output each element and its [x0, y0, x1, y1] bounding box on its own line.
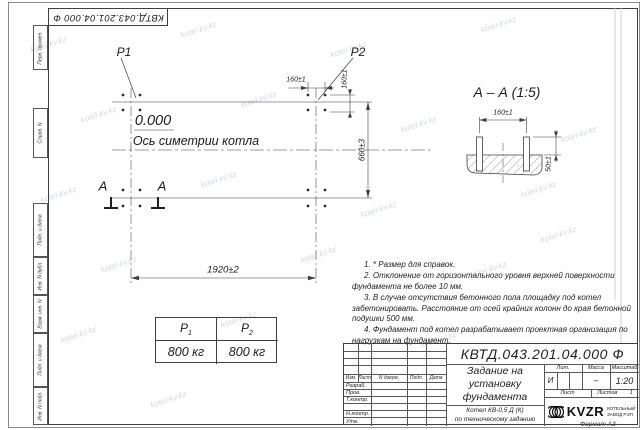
title-block: Изм. Лист N докум. Подп. Дата Разраб. Пр…: [343, 343, 638, 425]
dim-1920: 1920±2: [207, 265, 239, 276]
document-title-line: фундамента: [463, 391, 528, 404]
row-prov: Пров.: [344, 389, 371, 396]
scale-value: 1:20: [610, 372, 639, 389]
scale-label: Масштаб: [610, 364, 639, 372]
col-podp: Подп.: [407, 374, 426, 382]
load-table-header-p1: P1: [180, 321, 192, 337]
format-label: Формат А3: [580, 421, 616, 428]
document-title: Задание на установку фундамента: [446, 364, 544, 405]
title-block-designation: КВТД.043.201.04.000 Ф: [446, 344, 639, 364]
load-table-header-p2: P2: [241, 321, 253, 337]
sheet-label: Лист: [544, 389, 591, 397]
section-view-title: А – А (1:5): [474, 84, 541, 100]
company-logo-text: KVZR: [567, 404, 604, 419]
row-razrab: Разраб.: [344, 382, 371, 389]
load-point-p1-label: P1: [117, 45, 132, 59]
plan-anchor-bolts: [122, 94, 327, 208]
dim-160-horizontal: 160±1: [286, 77, 305, 84]
row-tkontr: Т.контр.: [344, 396, 371, 403]
company-name-line: ЗАВОД РЭП: [607, 412, 635, 417]
col-data: Дата: [426, 374, 446, 382]
dim-660: 660±3: [358, 139, 367, 161]
document-title-line: установку: [469, 378, 521, 391]
company-name: КОТЕЛЬНЫЙ ЗАВОД РЭП: [607, 406, 635, 417]
product-name-line: по техническому заданию: [455, 416, 535, 424]
mass-label: Масса: [582, 364, 610, 372]
technical-notes: 1. * Размер для справок. 2. Отклонение о…: [352, 260, 634, 347]
section-mark-a-right: А: [158, 179, 167, 194]
col-izm: Изм.: [344, 374, 358, 382]
symmetry-axis-label: Ось симетрии котла: [133, 134, 259, 148]
section-dim-160: 160±1: [493, 110, 512, 117]
dim-160-vertical: 160±1: [342, 69, 349, 88]
note-2: 2. Отклонение от горизонтального уровня …: [352, 271, 634, 292]
section-cut-marks: [104, 197, 165, 208]
note-1: 1. * Размер для справок.: [352, 260, 634, 270]
p-sub: 1: [188, 330, 192, 337]
section-mark-a-left: А: [99, 179, 108, 194]
row-nkontr: Н.контр.: [344, 410, 371, 417]
lit-label: Лит.: [544, 364, 582, 372]
lit-value: И: [544, 372, 557, 389]
sheets-label: Листов: [597, 390, 617, 396]
plan-view-lines: [112, 58, 432, 286]
load-table-value-p2: 800 кг: [229, 345, 265, 359]
load-point-p2-label: P2: [351, 45, 366, 59]
col-ndocum: N докум.: [371, 374, 407, 382]
sheets-cell: Листов 1: [591, 389, 639, 397]
product-name: Котел КВ-0,5 Д (К) по техническому задан…: [446, 405, 544, 426]
col-list: Лист: [358, 374, 371, 382]
company-logo: KVZR КОТЕЛЬНЫЙ ЗАВОД РЭП: [548, 404, 636, 420]
row-utv: Утв.: [344, 417, 371, 426]
drawing-sheet: { "colors": {"ink": "#3f3f3f", "paper": …: [0, 0, 644, 430]
document-title-line: Задание на: [467, 365, 523, 378]
sheets-value: 1: [630, 390, 633, 396]
note-3: 3. В случае отсутствия бетонного пола пл…: [352, 293, 634, 324]
p-base: P: [180, 321, 188, 335]
plan-dimensions: [131, 82, 370, 280]
kvzr-coil-icon: [548, 404, 564, 420]
p-sub: 2: [249, 330, 253, 337]
mass-value: –: [582, 372, 610, 389]
product-name-line: Котел КВ-0,5 Д (К): [466, 407, 523, 415]
load-table-divider: [156, 340, 278, 341]
section-dim-50: 50±1: [546, 156, 553, 172]
load-table-value-p1: 800 кг: [168, 345, 204, 359]
elevation-mark: 0.000: [135, 113, 171, 129]
p-base: P: [241, 321, 249, 335]
section-view: [467, 137, 542, 186]
load-table-divider: [216, 318, 217, 364]
